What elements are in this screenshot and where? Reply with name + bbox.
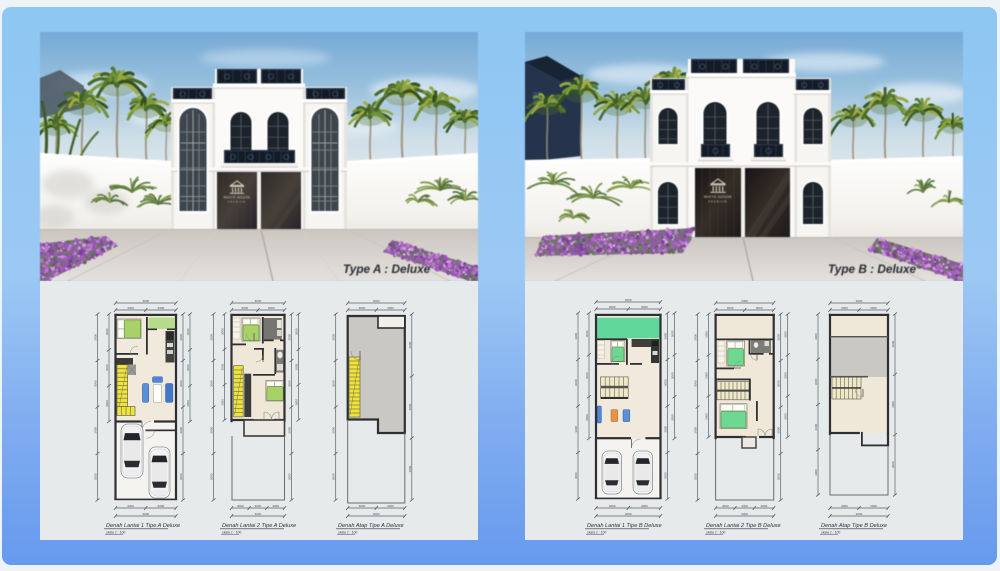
- svg-text:3000: 3000: [179, 473, 183, 480]
- svg-text:3000: 3000: [741, 299, 748, 303]
- svg-text:3000: 3000: [387, 504, 394, 508]
- svg-text:3000: 3000: [841, 306, 848, 310]
- svg-text:Denah Lantai 2 Tipe A Deluxe: Denah Lantai 2 Tipe A Deluxe: [222, 523, 296, 529]
- svg-text:3000: 3000: [777, 380, 781, 387]
- svg-text:3000: 3000: [641, 305, 648, 309]
- svg-text:3000: 3000: [756, 306, 763, 310]
- svg-text:3000: 3000: [387, 306, 394, 310]
- svg-text:3000: 3000: [664, 333, 668, 340]
- svg-text:3000: 3000: [741, 512, 748, 516]
- svg-text:3000: 3000: [814, 333, 818, 340]
- svg-text:3000: 3000: [210, 473, 214, 480]
- svg-text:Denah Lantai 1 Tipe A Deluxe: Denah Lantai 1 Tipe A Deluxe: [106, 523, 180, 529]
- svg-text:3000: 3000: [332, 380, 336, 387]
- svg-text:3000: 3000: [94, 334, 98, 341]
- svg-text:3000: 3000: [891, 461, 895, 468]
- svg-text:3000: 3000: [255, 512, 262, 516]
- svg-text:3000: 3000: [210, 334, 214, 341]
- svg-text:3000: 3000: [142, 512, 149, 516]
- svg-text:3000: 3000: [179, 380, 183, 387]
- svg-text:3000: 3000: [694, 473, 698, 480]
- svg-text:3000: 3000: [609, 504, 616, 508]
- svg-text:3000: 3000: [288, 380, 292, 387]
- svg-text:3000: 3000: [127, 306, 134, 310]
- svg-text:3000: 3000: [408, 341, 412, 348]
- svg-text:3000: 3000: [585, 414, 589, 421]
- svg-text:3000: 3000: [856, 512, 863, 516]
- svg-text:3000: 3000: [221, 328, 225, 335]
- svg-text:skala 1 : 100: skala 1 : 100: [222, 531, 241, 535]
- svg-text:3000: 3000: [741, 504, 748, 508]
- svg-text:3000: 3000: [373, 512, 380, 516]
- svg-text:3000: 3000: [641, 504, 648, 508]
- svg-text:3000: 3000: [784, 331, 788, 338]
- svg-text:3000: 3000: [784, 413, 788, 420]
- svg-text:3000: 3000: [186, 328, 190, 335]
- svg-text:3000: 3000: [777, 427, 781, 434]
- svg-text:3000: 3000: [694, 427, 698, 434]
- svg-text:3000: 3000: [186, 364, 190, 371]
- svg-text:3000: 3000: [671, 372, 675, 379]
- svg-text:3000: 3000: [295, 328, 299, 335]
- svg-text:3000: 3000: [408, 403, 412, 410]
- svg-text:3000: 3000: [210, 380, 214, 387]
- svg-text:3000: 3000: [664, 472, 668, 479]
- svg-text:Denah Lantai 2 Tipe B Deluxe: Denah Lantai 2 Tipe B Deluxe: [706, 523, 781, 529]
- svg-text:3000: 3000: [241, 306, 248, 310]
- svg-text:3000: 3000: [255, 504, 262, 508]
- svg-text:3000: 3000: [94, 473, 98, 480]
- svg-text:3000: 3000: [777, 473, 781, 480]
- svg-text:3000: 3000: [585, 372, 589, 379]
- svg-text:3000: 3000: [332, 473, 336, 480]
- svg-text:3000: 3000: [142, 299, 149, 303]
- svg-text:3000: 3000: [727, 306, 734, 310]
- svg-text:3000: 3000: [179, 334, 183, 341]
- svg-text:3000: 3000: [186, 400, 190, 407]
- svg-text:Type B : Deluxe: Type B : Deluxe: [828, 262, 917, 276]
- svg-text:3000: 3000: [814, 469, 818, 476]
- svg-text:3000: 3000: [761, 504, 768, 508]
- svg-text:3000: 3000: [332, 334, 336, 341]
- svg-text:skala 1 : 100: skala 1 : 100: [587, 531, 606, 535]
- svg-text:3000: 3000: [158, 504, 165, 508]
- svg-text:3000: 3000: [784, 372, 788, 379]
- svg-text:3000: 3000: [574, 379, 578, 386]
- svg-text:3000: 3000: [705, 372, 709, 379]
- svg-text:3000: 3000: [127, 504, 134, 508]
- svg-text:3000: 3000: [359, 504, 366, 508]
- svg-text:3000: 3000: [105, 328, 109, 335]
- svg-text:3000: 3000: [722, 504, 729, 508]
- svg-text:3000: 3000: [814, 378, 818, 385]
- svg-text:3000: 3000: [373, 299, 380, 303]
- svg-text:3000: 3000: [272, 504, 279, 508]
- svg-text:3000: 3000: [814, 423, 818, 430]
- svg-text:3000: 3000: [332, 427, 336, 434]
- svg-text:3000: 3000: [585, 330, 589, 337]
- svg-text:3000: 3000: [694, 380, 698, 387]
- svg-text:skala 1 : 100: skala 1 : 100: [821, 531, 840, 535]
- svg-text:3000: 3000: [705, 331, 709, 338]
- svg-text:3000: 3000: [664, 379, 668, 386]
- svg-text:3000: 3000: [255, 299, 262, 303]
- svg-text:PREMIUM: PREMIUM: [228, 202, 246, 204]
- svg-text:WHITE HOUSE: WHITE HOUSE: [704, 195, 733, 199]
- svg-text:3000: 3000: [105, 364, 109, 371]
- svg-text:3000: 3000: [664, 426, 668, 433]
- svg-text:skala 1 : 100: skala 1 : 100: [706, 531, 725, 535]
- svg-text:3000: 3000: [221, 399, 225, 406]
- svg-text:3000: 3000: [94, 380, 98, 387]
- svg-text:3000: 3000: [574, 426, 578, 433]
- svg-text:3000: 3000: [671, 330, 675, 337]
- svg-text:PREMIUM: PREMIUM: [708, 201, 727, 203]
- svg-text:3000: 3000: [94, 427, 98, 434]
- svg-text:3000: 3000: [408, 465, 412, 472]
- svg-text:3000: 3000: [268, 306, 275, 310]
- svg-text:3000: 3000: [777, 334, 781, 341]
- svg-text:3000: 3000: [891, 401, 895, 408]
- svg-text:3000: 3000: [105, 400, 109, 407]
- svg-text:3000: 3000: [237, 504, 244, 508]
- svg-text:Denah Atap Tipe B Deluxe: Denah Atap Tipe B Deluxe: [821, 523, 887, 529]
- svg-text:3000: 3000: [574, 333, 578, 340]
- svg-text:3000: 3000: [609, 305, 616, 309]
- svg-text:3000: 3000: [870, 504, 877, 508]
- svg-text:3000: 3000: [625, 512, 632, 516]
- svg-text:3000: 3000: [856, 299, 863, 303]
- svg-text:3000: 3000: [288, 334, 292, 341]
- svg-text:3000: 3000: [891, 341, 895, 348]
- svg-text:3000: 3000: [841, 504, 848, 508]
- svg-text:3000: 3000: [574, 472, 578, 479]
- svg-text:3000: 3000: [694, 334, 698, 341]
- svg-text:3000: 3000: [221, 363, 225, 370]
- svg-text:Type A : Deluxe: Type A : Deluxe: [343, 262, 431, 276]
- svg-text:3000: 3000: [359, 306, 366, 310]
- svg-text:skala 1 : 100: skala 1 : 100: [338, 531, 357, 535]
- svg-text:3000: 3000: [295, 363, 299, 370]
- svg-text:skala 1 : 100: skala 1 : 100: [106, 531, 125, 535]
- svg-text:3000: 3000: [671, 414, 675, 421]
- svg-text:3000: 3000: [210, 427, 214, 434]
- svg-text:Denah Atap Tipe A Deluxe: Denah Atap Tipe A Deluxe: [338, 523, 404, 529]
- svg-text:3000: 3000: [870, 306, 877, 310]
- svg-text:3000: 3000: [295, 399, 299, 406]
- svg-text:3000: 3000: [288, 427, 292, 434]
- svg-text:3000: 3000: [288, 473, 292, 480]
- svg-text:3000: 3000: [179, 427, 183, 434]
- svg-text:3000: 3000: [158, 306, 165, 310]
- svg-text:Denah Lantai 1 Tipe B Deluxe: Denah Lantai 1 Tipe B Deluxe: [587, 523, 662, 529]
- svg-text:3000: 3000: [625, 298, 632, 302]
- svg-text:3000: 3000: [705, 413, 709, 420]
- svg-text:WHITE HOUSE: WHITE HOUSE: [224, 196, 251, 200]
